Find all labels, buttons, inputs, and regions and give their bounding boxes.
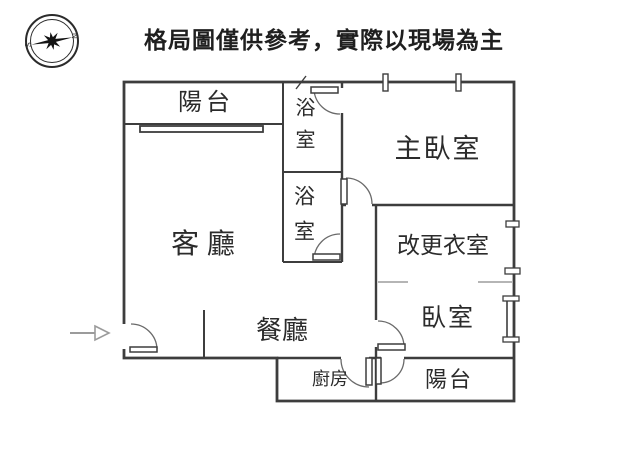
compass-rose [31, 32, 72, 50]
master-bedroom-door [341, 178, 372, 204]
room-label-balcony-bottom: 陽台 [418, 365, 480, 395]
room-label-dining-room: 餐廳 [248, 313, 316, 347]
balcony-window [140, 126, 263, 132]
compass-south-label: S [23, 42, 32, 47]
bedroom-window [503, 296, 519, 342]
room-label-living-room: 客 廳 [147, 225, 259, 263]
bedroom-door [378, 321, 405, 350]
entrance-arrow [70, 326, 109, 340]
balcony-door [376, 358, 404, 384]
room-label-bath-upper: 浴室 [285, 98, 321, 160]
right-wall-ticks [505, 221, 520, 274]
entrance-door [130, 324, 157, 352]
room-label-master-bedroom: 主臥室 [378, 131, 498, 167]
room-label-bath-lower: 浴室 [285, 184, 321, 256]
room-label-bedroom: 臥室 [413, 301, 483, 335]
disclaimer-text: 格局圖僅供參考，實際以現場為主 [138, 24, 510, 56]
room-label-dressing-room: 改更衣室 [383, 230, 503, 260]
compass-icon: S N [23, 15, 79, 67]
room-label-balcony-top: 陽台 [142, 88, 270, 118]
compass-north-label: N [70, 33, 79, 39]
room-label-kitchen: 廚房 [303, 366, 357, 392]
floor-plan-page: S N [0, 0, 640, 473]
